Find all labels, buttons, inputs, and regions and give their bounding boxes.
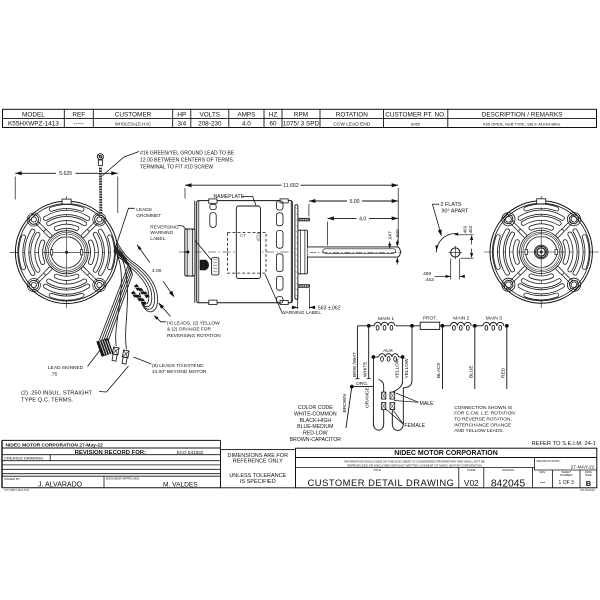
svg-text:842045: 842045	[491, 478, 526, 489]
svg-text:NAMEPLATE: NAMEPLATE	[214, 194, 245, 200]
svg-text:4.00: 4.00	[152, 268, 162, 274]
svg-text:CCW LEAD END: CCW LEAD END	[333, 121, 370, 127]
svg-text:AMPS: AMPS	[237, 111, 255, 118]
svg-text:M. VALDES: M. VALDES	[163, 481, 198, 488]
svg-text:CREATED DRAWING: CREATED DRAWING	[4, 456, 43, 461]
svg-text:REVISION RECORD FOR:: REVISION RECORD FOR:	[75, 450, 146, 456]
svg-text:RED: RED	[501, 367, 507, 378]
svg-text:5.625: 5.625	[59, 171, 72, 177]
svg-text:-----: -----	[73, 120, 84, 127]
svg-text:LABEL: LABEL	[150, 236, 165, 242]
svg-text:12.00 BETWEEN CENTERS OF TERMS: 12.00 BETWEEN CENTERS OF TERMS.	[140, 157, 234, 163]
svg-text:REF: REF	[72, 111, 85, 118]
svg-text:---: ---	[540, 480, 546, 486]
svg-text:.453: .453	[468, 225, 473, 234]
svg-text:11.652: 11.652	[283, 183, 299, 189]
svg-text:(8) LEADS TO EXTEND: (8) LEADS TO EXTEND	[152, 363, 204, 369]
svg-text:REVERSING: REVERSING	[150, 224, 179, 230]
svg-text:YELLOW: YELLOW	[394, 358, 400, 378]
svg-text:REVISION DATE :: REVISION DATE :	[537, 459, 562, 463]
svg-text:HP: HP	[177, 111, 186, 118]
svg-text:#16 GREEN/YEL GROUND LEAD TO B: #16 GREEN/YEL GROUND LEAD TO BE	[140, 150, 235, 156]
svg-text:CRT 13MT5 0823-1P12: CRT 13MT5 0823-1P12	[4, 489, 30, 492]
svg-text:.75: .75	[51, 372, 58, 378]
svg-text:TOP: TOP	[256, 232, 261, 241]
svg-text:CODE: CODE	[467, 468, 475, 472]
svg-text:90° APART: 90° APART	[442, 208, 470, 214]
svg-text:LEAD SKINNED: LEAD SKINNED	[48, 365, 84, 371]
svg-text:GROMMET: GROMMET	[136, 213, 161, 219]
svg-text:HZ: HZ	[269, 111, 278, 118]
svg-text:SIZE: SIZE	[585, 473, 591, 477]
svg-text:3/4: 3/4	[177, 120, 186, 127]
svg-text:FEMALE: FEMALE	[404, 423, 425, 429]
svg-text:ITEM/NO: ITEM/NO	[502, 468, 515, 472]
svg-text:BLACK: BLACK	[436, 361, 442, 378]
svg-text:AUX: AUX	[383, 348, 394, 354]
svg-text:TERMINAL TO FIT #10 SCREW: TERMINAL TO FIT #10 SCREW	[140, 164, 213, 170]
svg-text:LEADS: LEADS	[136, 207, 152, 213]
svg-text:J. ALVARADO: J. ALVARADO	[38, 481, 83, 488]
svg-text:4.0: 4.0	[242, 120, 251, 127]
svg-text:CUSTOMER PT. NO.: CUSTOMER PT. NO.	[385, 111, 446, 118]
svg-text:BROWN-CAPACITOR: BROWN-CAPACITOR	[290, 437, 342, 443]
svg-text:NIDEC MOTOR CORPORATION 27-May: NIDEC MOTOR CORPORATION 27-May-22	[6, 443, 104, 449]
svg-text:K55HXWPZ-1413: K55HXWPZ-1413	[8, 120, 59, 127]
svg-text:.469: .469	[422, 271, 432, 277]
svg-text:IS SPECIFIED: IS SPECIFIED	[240, 479, 276, 485]
svg-text:YELLOW: YELLOW	[404, 358, 410, 378]
svg-text:TITLE: TITLE	[373, 468, 381, 472]
svg-text:NUMBER: NUMBER	[560, 473, 573, 477]
svg-text:AND YELLOW LEADS.: AND YELLOW LEADS.	[454, 428, 504, 434]
svg-text:TO REVERSE ROTATION,: TO REVERSE ROTATION,	[454, 417, 512, 423]
svg-text:WARNING LABEL: WARNING LABEL	[281, 310, 321, 316]
svg-text:RED-LOW: RED-LOW	[303, 431, 328, 437]
svg-text:4.0: 4.0	[359, 216, 366, 222]
svg-text:COLOR CODE: COLOR CODE	[298, 405, 333, 411]
svg-text:INTERCHANGE ORANGE: INTERCHANGE ORANGE	[454, 422, 511, 428]
svg-text:BLUE: BLUE	[469, 365, 475, 378]
svg-text:CONNECTION SHOWN IS: CONNECTION SHOWN IS	[454, 405, 512, 411]
svg-text:IDS PDF/EXE: IDS PDF/EXE	[580, 489, 595, 492]
svg-text:MODEL: MODEL	[22, 111, 45, 118]
svg-text:RPM: RPM	[294, 111, 308, 118]
svg-text:CT: CT	[240, 233, 246, 238]
svg-text:(2) .250 INSUL. STRAIGHT: (2) .250 INSUL. STRAIGHT	[21, 391, 93, 397]
svg-text:ROTATION: ROTATION	[336, 111, 368, 118]
svg-text:WHITE-COMMON: WHITE-COMMON	[294, 411, 337, 417]
svg-text:BLACK-HIGH: BLACK-HIGH	[299, 418, 331, 424]
svg-text:FOR C.CW. L.E. ROTATION: FOR C.CW. L.E. ROTATION	[454, 411, 515, 417]
svg-text:ORANGE: ORANGE	[365, 387, 371, 408]
svg-text:(4) LEADS, (2) YELLOW: (4) LEADS, (2) YELLOW	[167, 320, 220, 326]
svg-text:60: 60	[269, 120, 277, 127]
svg-text:1 OF 3: 1 OF 3	[559, 480, 575, 486]
svg-text:.563 ±.062: .563 ±.062	[317, 305, 341, 311]
svg-text:REV: REV	[540, 470, 546, 474]
svg-text:ENGINEER APPROVED:: ENGINEER APPROVED:	[106, 477, 140, 481]
svg-text:WARNING: WARNING	[150, 230, 173, 236]
svg-text:1075/ 3 SPD: 1075/ 3 SPD	[283, 120, 320, 127]
svg-text:REVERSING ROTATION: REVERSING ROTATION	[167, 333, 221, 339]
svg-text:.453: .453	[425, 277, 435, 283]
svg-text:BROWN: BROWN	[342, 394, 348, 413]
svg-text:ISSUED BY :: ISSUED BY :	[4, 477, 22, 481]
svg-text:MAIN 1: MAIN 1	[378, 316, 394, 322]
svg-text:24.00" BEYOND MOTOR: 24.00" BEYOND MOTOR	[152, 369, 207, 375]
svg-text:BLUE-MEDIUM: BLUE-MEDIUM	[297, 424, 333, 430]
svg-text:NIDEC MOTOR CORPORATION: NIDEC MOTOR CORPORATION	[394, 450, 498, 457]
svg-text:CUSTOMER: CUSTOMER	[115, 111, 152, 118]
svg-text:DESCRIPTION / REMARKS: DESCRIPTION / REMARKS	[482, 111, 563, 118]
svg-text:ECO E41932: ECO E41932	[177, 450, 204, 455]
svg-text:208-230: 208-230	[198, 120, 222, 127]
svg-text:CUSTOMER DETAIL DRAWING: CUSTOMER DETAIL DRAWING	[308, 477, 455, 488]
svg-text:2 FLATS: 2 FLATS	[441, 202, 462, 208]
svg-text:REPRODUCED OR DISCLOSED WITHOU: REPRODUCED OR DISCLOSED WITHOUT WRITTEN …	[347, 463, 482, 467]
svg-text:& (2) ORANGE FOR: & (2) ORANGE FOR	[167, 327, 212, 333]
svg-text:VOLTS: VOLTS	[200, 111, 220, 118]
svg-text:K55 OPEN, HUB TYPE, SELF-ALIGN: K55 OPEN, HUB TYPE, SELF-ALIGN BRG.	[483, 121, 561, 126]
svg-text:BRW /WHT: BRW /WHT	[352, 352, 358, 377]
svg-text:8965: 8965	[411, 121, 421, 126]
svg-text:WHITE: WHITE	[362, 362, 368, 377]
svg-text:MAIN 2: MAIN 2	[453, 315, 469, 321]
svg-text:PROT.: PROT.	[423, 315, 437, 321]
svg-text:REFERENCE ONLY: REFERENCE ONLY	[233, 458, 283, 464]
svg-text:V02: V02	[464, 478, 479, 488]
svg-text:5.00: 5.00	[349, 199, 359, 205]
svg-text:.047: .047	[387, 231, 392, 240]
svg-text:.500: .500	[395, 229, 400, 238]
svg-text:WHOLESALE-HAC: WHOLESALE-HAC	[115, 121, 151, 126]
svg-text:REFER TO S.E.I.M. 24-1: REFER TO S.E.I.M. 24-1	[531, 441, 596, 447]
svg-text:MALE: MALE	[420, 401, 435, 407]
svg-text:B: B	[586, 479, 592, 488]
svg-text:TYPE Q.C. TERMS.: TYPE Q.C. TERMS.	[21, 398, 73, 404]
svg-text:MAIN 3: MAIN 3	[486, 315, 502, 321]
svg-text:.469: .469	[463, 225, 468, 234]
